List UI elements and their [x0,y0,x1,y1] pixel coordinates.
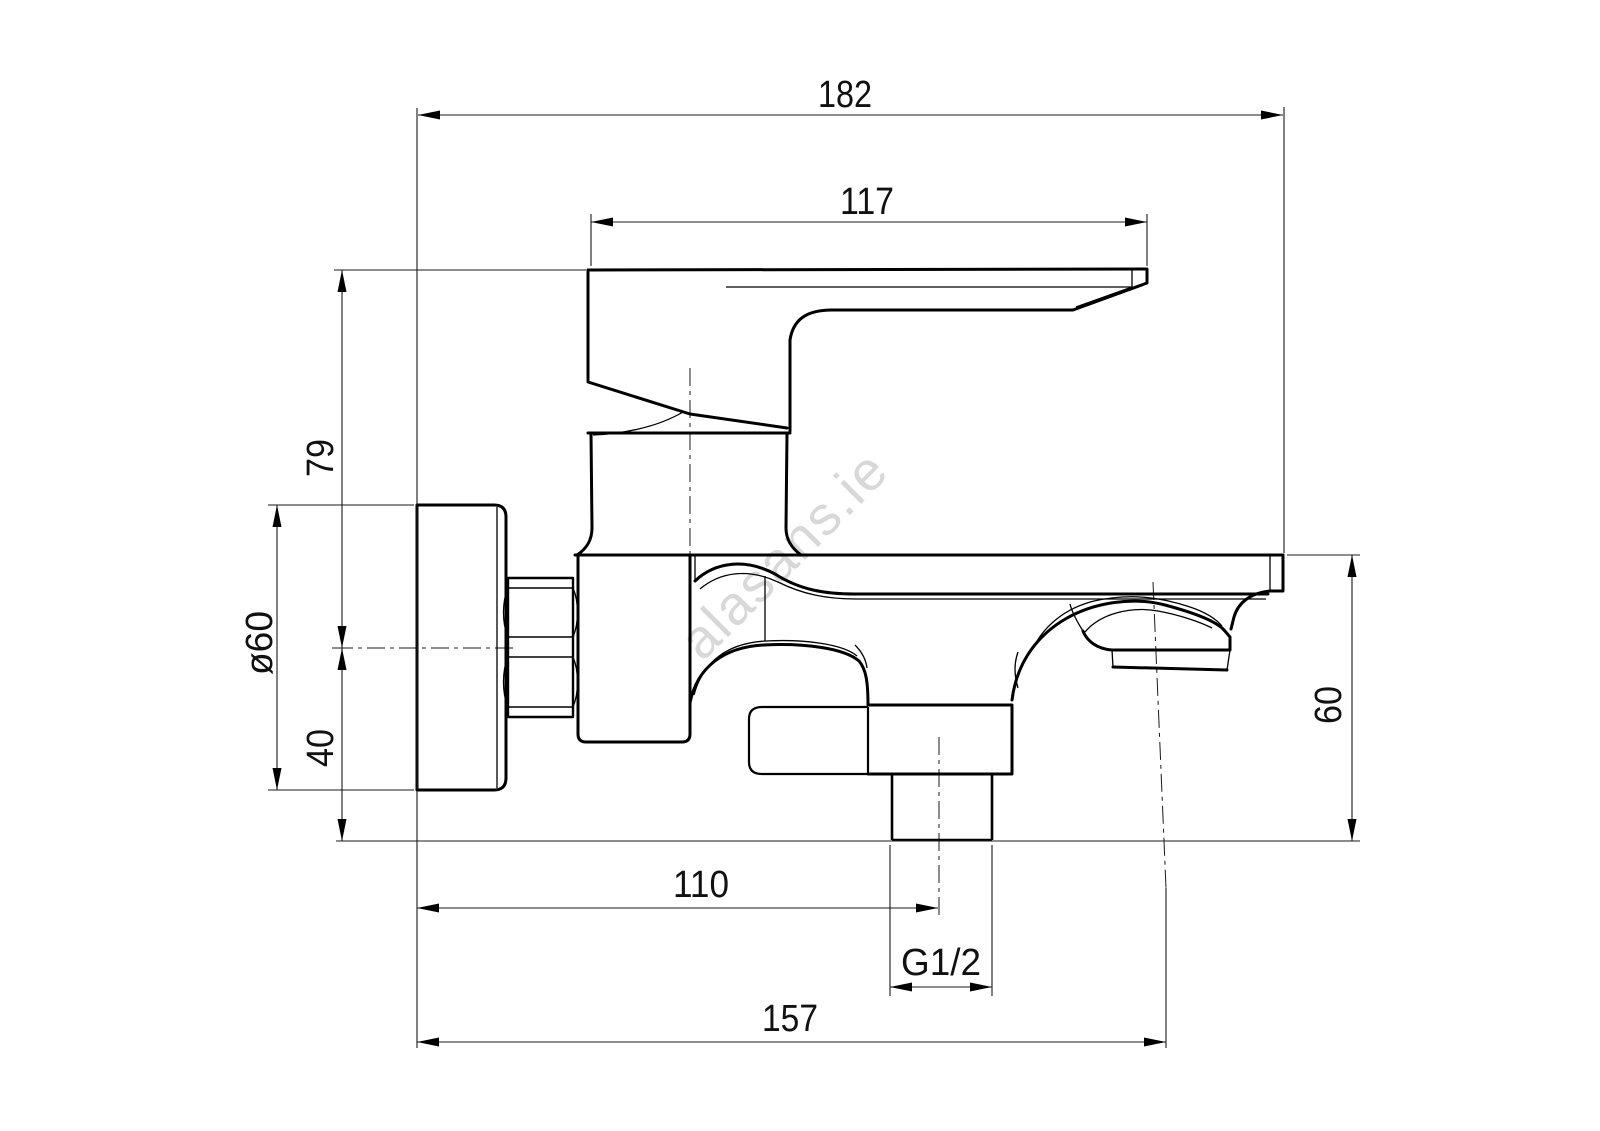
dim-157-label: 157 [762,998,818,1040]
dimension-spout-drop: 60 [1287,555,1360,841]
shower-outlet-hub [749,705,1012,774]
dimension-wall-to-spout: 157 [417,888,1166,1048]
underside-arch-right [1012,597,1224,700]
lever-handle [588,269,1147,435]
technical-drawing-page: alasans.ie [0,0,1600,1131]
dim-thread-label: G1/2 [901,942,981,984]
faucet-dimension-drawing: alasans.ie [0,0,1600,1131]
dim-flange-diameter-label: ø60 [239,611,281,675]
dim-60-label: 60 [1308,686,1350,724]
dim-182-label: 182 [818,74,872,116]
bottom-outlet-pipe [892,774,992,840]
dim-117-label: 117 [840,181,894,223]
dim-40-label: 40 [300,729,342,767]
centerlines [335,368,1166,920]
dim-79-label: 79 [300,439,342,477]
faucet-body [417,269,1283,840]
spout-outlet-centerline [1153,582,1166,888]
dimension-outlet-thread: G1/2 [890,845,992,996]
dimension-axis-to-flange-bottom: 40 [300,648,347,841]
body-block [578,555,690,742]
wall-flange [417,505,506,790]
dimension-handle-length: 117 [591,181,1147,266]
dim-110-label: 110 [673,864,729,906]
hex-nut [504,578,578,717]
dimension-axis-to-outlet: 110 [417,864,938,913]
dimension-height-above-axis: 79 [300,270,586,648]
